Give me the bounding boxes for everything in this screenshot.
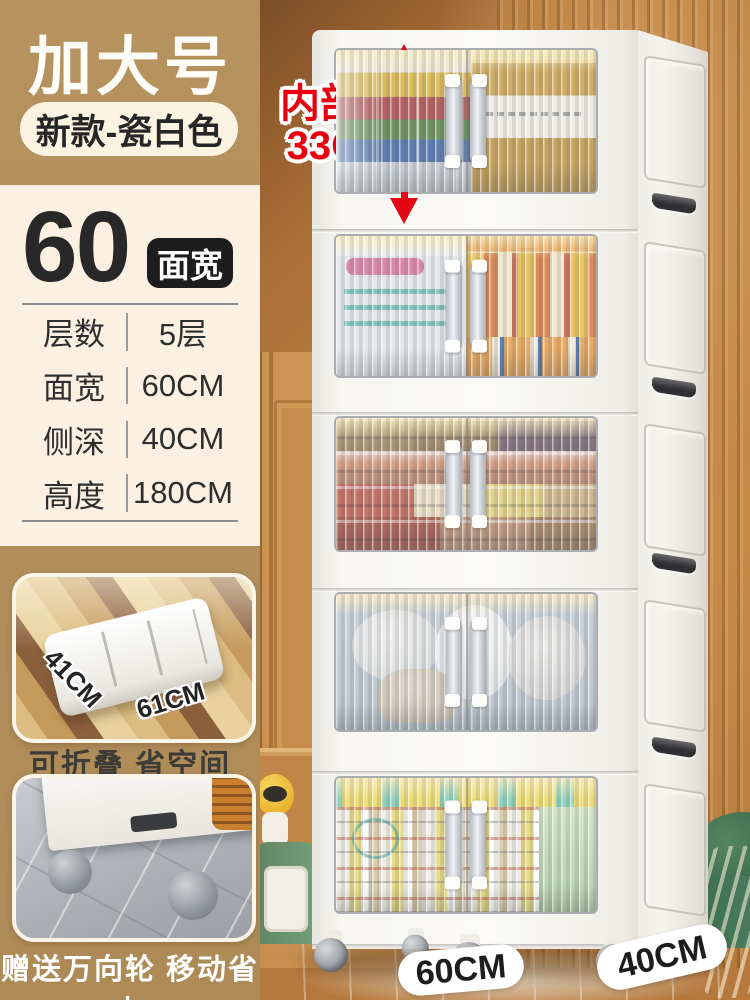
height-arrow-icon bbox=[390, 198, 418, 224]
table-row: 侧深 40CM bbox=[22, 413, 238, 467]
tier-1-door bbox=[334, 48, 598, 194]
tier-5-door bbox=[334, 776, 598, 914]
toy-visor bbox=[263, 786, 287, 802]
table-row: 面宽 60CM bbox=[22, 359, 238, 413]
product-listing-image: 内部高 33CM 60CM 40CM 加大号 新款-瓷白色 60 面宽 层数 5… bbox=[0, 0, 750, 1000]
toy-body bbox=[262, 812, 288, 846]
door-handle bbox=[442, 443, 490, 525]
caster-wheel bbox=[48, 850, 92, 894]
caster-wheel bbox=[168, 870, 218, 920]
table-row: 层数 5层 bbox=[22, 305, 238, 359]
basket-content bbox=[212, 778, 252, 830]
size-badge: 面宽 bbox=[147, 238, 233, 288]
door-handle bbox=[442, 803, 490, 886]
size-number: 60 bbox=[22, 190, 129, 305]
door-handle bbox=[442, 620, 490, 704]
table-row: 高度 180CM bbox=[22, 466, 238, 520]
tier-3-door bbox=[334, 416, 598, 552]
caster-wheel bbox=[314, 930, 350, 972]
wheels-photo bbox=[12, 774, 256, 942]
nightstand-drawer bbox=[264, 866, 308, 932]
wheels-photo-caption: 赠送万向轮 移动省力 bbox=[0, 946, 260, 1000]
spec-table: 层数 5层 面宽 60CM 侧深 40CM 高度 180CM bbox=[22, 303, 238, 522]
variant-pill: 新款-瓷白色 bbox=[20, 102, 238, 156]
tier-4-door bbox=[334, 592, 598, 732]
folded-box-photo: 41CM 61CM bbox=[12, 573, 256, 743]
product-title: 加大号 bbox=[0, 16, 260, 108]
door-handle bbox=[442, 77, 490, 165]
door-handle bbox=[442, 263, 490, 350]
tier-2-door bbox=[334, 234, 598, 378]
